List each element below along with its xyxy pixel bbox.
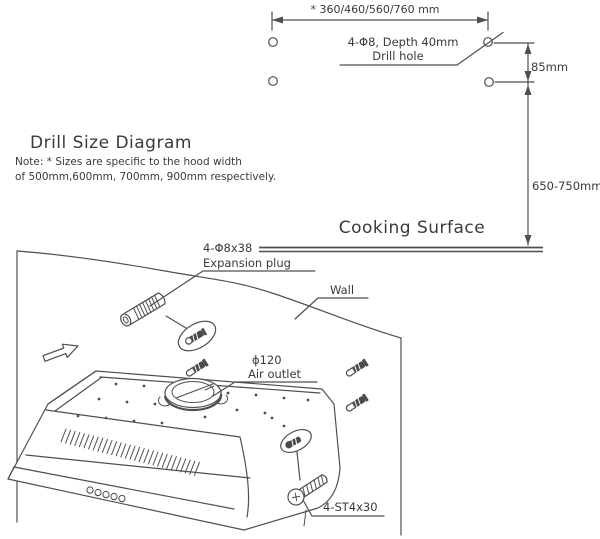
expansion-plug-drawing: [118, 292, 166, 328]
width-dimension-label: * 360/460/560/760 mm: [310, 3, 439, 16]
plug-detail-oval: [173, 315, 221, 357]
dim-85mm: 85mm: [494, 43, 568, 245]
wall-label: Wall: [330, 283, 354, 297]
drill-hole-callout: 4-Φ8, Depth 40mm Drill hole: [340, 33, 503, 66]
dim-650-750mm-label: 650-750mm: [532, 179, 600, 193]
expansion-plug-line1: 4-Φ8x38: [203, 241, 252, 255]
air-outlet-line1: ϕ120: [252, 353, 282, 367]
hole-spec-line1: 4-Φ8, Depth 40mm: [348, 35, 459, 49]
screw-label: 4-ST4x30: [323, 500, 378, 514]
anchor-screw-small-2: [345, 358, 369, 378]
dim-650-750mm: 650-750mm: [525, 85, 600, 245]
anchor-screw-small-1: [185, 358, 209, 378]
wall-callout: Wall: [295, 283, 368, 319]
anchor-screw-small-3: [345, 393, 369, 413]
hole-spec-line2: Drill hole: [372, 49, 423, 63]
drill-size-diagram: * 360/460/560/760 mm 4-Φ8, Depth 40mm Dr…: [15, 3, 600, 252]
note-line2: of 500mm,600mm, 700mm, 900mm respectivel…: [15, 171, 276, 183]
range-hood-drawing: [8, 371, 340, 530]
width-dimension: * 360/460/560/760 mm: [272, 3, 488, 30]
expansion-plug-callout: 4-Φ8x38 Expansion plug: [150, 241, 315, 328]
note-line1: Note: * Sizes are specific to the hood w…: [15, 156, 242, 168]
install-direction-arrow: [43, 344, 78, 361]
expansion-plug-line2: Expansion plug: [203, 256, 291, 270]
page-title: Drill Size Diagram: [30, 133, 192, 153]
installation-guide-page: * 360/460/560/760 mm 4-Φ8, Depth 40mm Dr…: [0, 0, 600, 539]
air-outlet-line2: Air outlet: [248, 367, 302, 381]
cooking-surface-label: Cooking Surface: [339, 218, 485, 238]
installation-diagram: * 360/460/560/760 mm 4-Φ8, Depth 40mm Dr…: [0, 0, 600, 539]
cooking-surface: Cooking Surface: [259, 218, 543, 252]
dim-85mm-label: 85mm: [531, 60, 568, 74]
